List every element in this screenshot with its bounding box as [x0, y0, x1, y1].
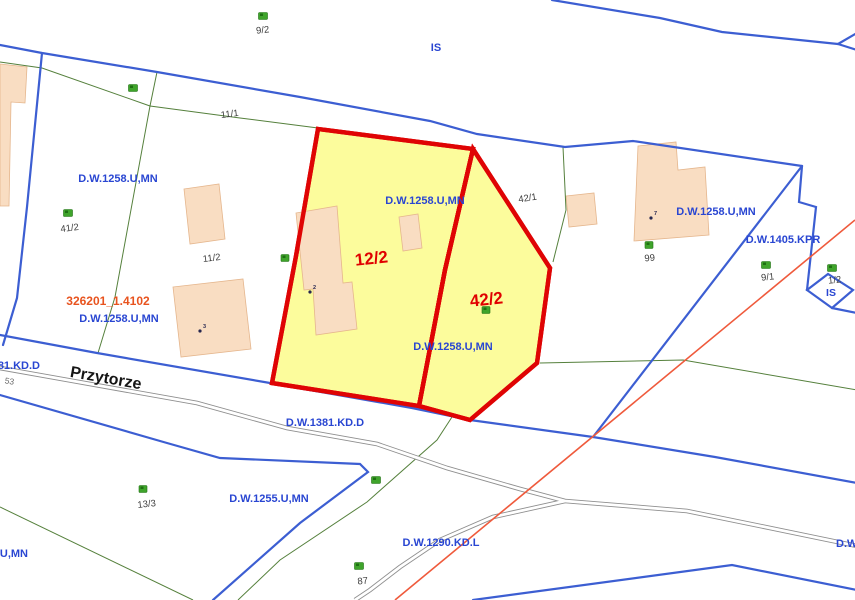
tree-icon	[372, 477, 381, 484]
zone-label: D.W.1405.KPR	[746, 234, 821, 246]
boundary-line	[838, 33, 855, 44]
map-canvas[interactable]: 2 3 7 9/2 11/1 41/2 11/2 42/1 99 9/1 1/2…	[0, 0, 855, 600]
zone-label: D.W.1290.KD.L	[402, 537, 479, 549]
address-point	[308, 290, 311, 293]
tree-icon	[64, 210, 73, 217]
building	[173, 279, 251, 357]
building	[0, 64, 27, 206]
parcel-line	[540, 360, 855, 390]
tree-icon	[355, 563, 364, 570]
parcel-number: 11/2	[202, 252, 221, 265]
parcel-line	[553, 147, 566, 262]
address-point	[198, 329, 201, 332]
tree-icon	[259, 13, 268, 20]
zone-label: D.W.1258.U,MN	[79, 313, 159, 325]
tree-icon	[129, 85, 138, 92]
parcel-number: 99	[644, 252, 656, 264]
map-sheet-reference: 326201_1.4102	[66, 294, 150, 308]
tree-icon	[281, 255, 289, 262]
address-number: 7	[654, 211, 657, 217]
zone-label-is: IS	[826, 287, 836, 299]
tree-icon	[828, 265, 837, 272]
parcel-number: 41/2	[60, 222, 80, 235]
parcel-number: 53	[4, 375, 15, 386]
zone-label: D.W.1381.KD.D	[286, 417, 364, 429]
boundary-line	[838, 44, 855, 50]
parcel-number: 87	[357, 575, 369, 587]
zone-label: D.W.1258.U,MN	[78, 173, 158, 185]
boundary-line	[552, 0, 838, 44]
address-number: 2	[313, 285, 316, 291]
road-branch	[355, 501, 565, 600]
zone-label-is: IS	[431, 42, 441, 54]
boundary-line	[799, 166, 816, 290]
building	[634, 142, 709, 241]
highlighted-parcel-label: 12/2	[354, 247, 389, 269]
road-branch-fill	[355, 501, 565, 600]
parcel-number: 9/2	[256, 24, 270, 36]
building	[566, 193, 597, 227]
building	[399, 214, 422, 251]
zone-label: D.W.1255.U,MN	[229, 493, 309, 505]
tree-icon	[139, 486, 147, 493]
address-number: 3	[203, 324, 206, 330]
highlighted-parcel-label: 42/2	[469, 288, 504, 310]
parcel-number: 13/3	[137, 498, 157, 511]
tree-icon	[762, 262, 771, 269]
tree-icon	[645, 242, 653, 249]
parcel-line	[0, 507, 193, 600]
parcel-number: 42/1	[518, 192, 538, 206]
zone-label-clipped: D.W.1255.U,MN	[0, 548, 28, 560]
parcel-number: 1/2	[828, 274, 842, 286]
address-point	[649, 216, 652, 219]
boundary-line	[473, 565, 855, 600]
zone-label: D.W.1258.U,MN	[413, 341, 493, 353]
cadastral-map: 2 3 7 9/2 11/1 41/2 11/2 42/1 99 9/1 1/2…	[0, 0, 855, 600]
zone-label: D.W.1258.U,MN	[385, 195, 465, 207]
parcel-number: 11/1	[220, 108, 239, 121]
parcel-line	[150, 72, 157, 106]
zone-label-clipped: D.W.	[836, 538, 855, 550]
zone-label: D.W.1258.U,MN	[676, 206, 756, 218]
boundary-line	[832, 308, 855, 313]
zone-label-clipped: D.W.1381.KD.D	[0, 360, 40, 372]
parcel-number: 9/1	[761, 271, 775, 283]
building	[184, 184, 225, 244]
parcel-line	[238, 417, 452, 600]
